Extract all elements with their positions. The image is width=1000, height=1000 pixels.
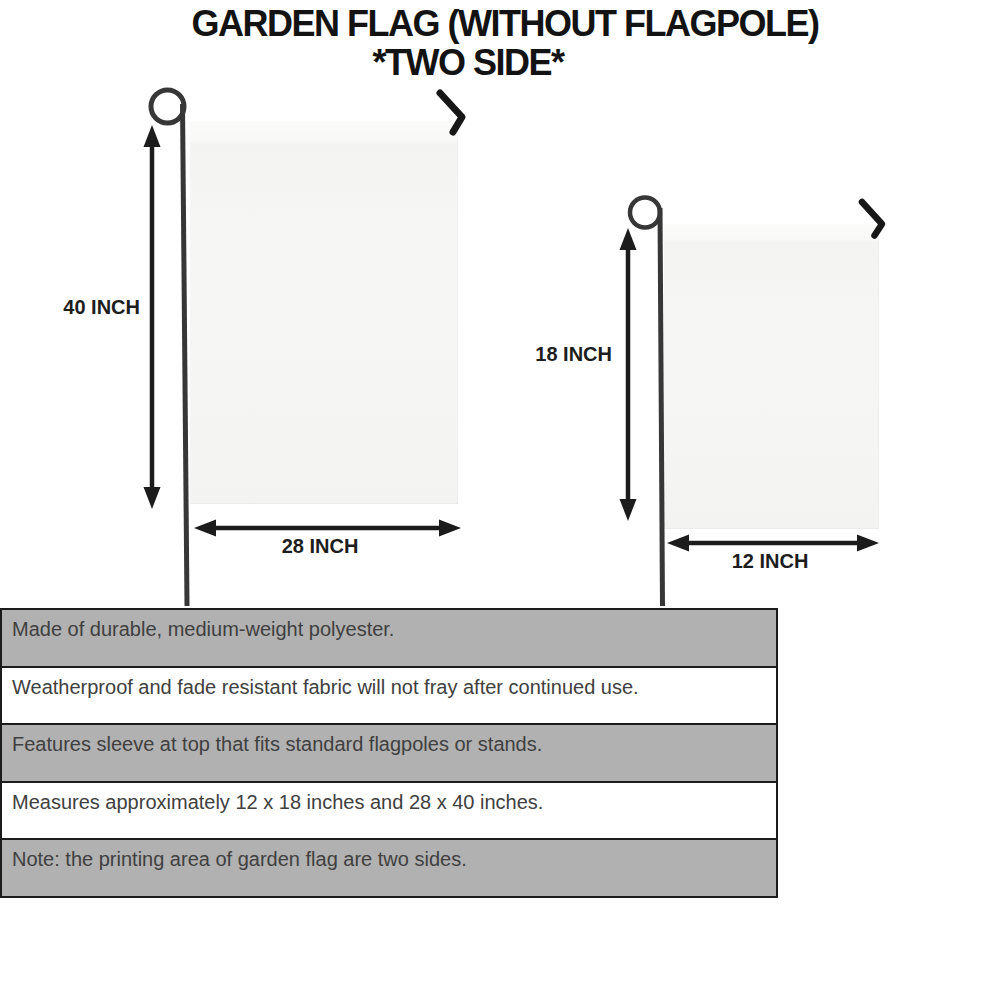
large-flag-width-label: 28 INCH xyxy=(220,535,420,557)
small-flag xyxy=(664,224,879,529)
feature-row: Made of durable, medium-weight polyester… xyxy=(2,610,776,668)
garden-flag-infographic: { "title": { "line1": "GARDEN FLAG (WITH… xyxy=(0,0,1000,1000)
small-flagpole xyxy=(660,208,663,606)
title-block: GARDEN FLAG (WITHOUT FLAGPOLE) *TWO SIDE… xyxy=(0,4,1000,82)
large-flag-height-label: 40 INCH xyxy=(40,296,140,318)
feature-row: Note: the printing area of garden flag a… xyxy=(2,840,776,896)
feature-row: Weatherproof and fade resistant fabric w… xyxy=(2,668,776,726)
small-flag-width-arrow xyxy=(667,535,879,552)
large-flag-height-arrow xyxy=(144,125,161,509)
large-flagpole xyxy=(183,104,188,606)
small-flag-height-label: 18 INCH xyxy=(512,343,612,365)
large-flag-width-arrow xyxy=(194,520,461,537)
large-flag xyxy=(190,121,458,504)
small-flagpole-loop-icon xyxy=(630,198,660,228)
small-flag-width-label: 12 INCH xyxy=(670,550,870,572)
large-flagpole-loop-icon xyxy=(151,90,184,123)
features-table: Made of durable, medium-weight polyester… xyxy=(0,608,778,898)
feature-row: Measures approximately 12 x 18 inches an… xyxy=(2,783,776,841)
page-title: GARDEN FLAG (WITHOUT FLAGPOLE) xyxy=(0,4,1000,43)
small-flag-height-arrow xyxy=(620,228,637,521)
page-subtitle: *TWO SIDE* xyxy=(0,43,1000,82)
feature-row: Features sleeve at top that fits standar… xyxy=(2,725,776,783)
